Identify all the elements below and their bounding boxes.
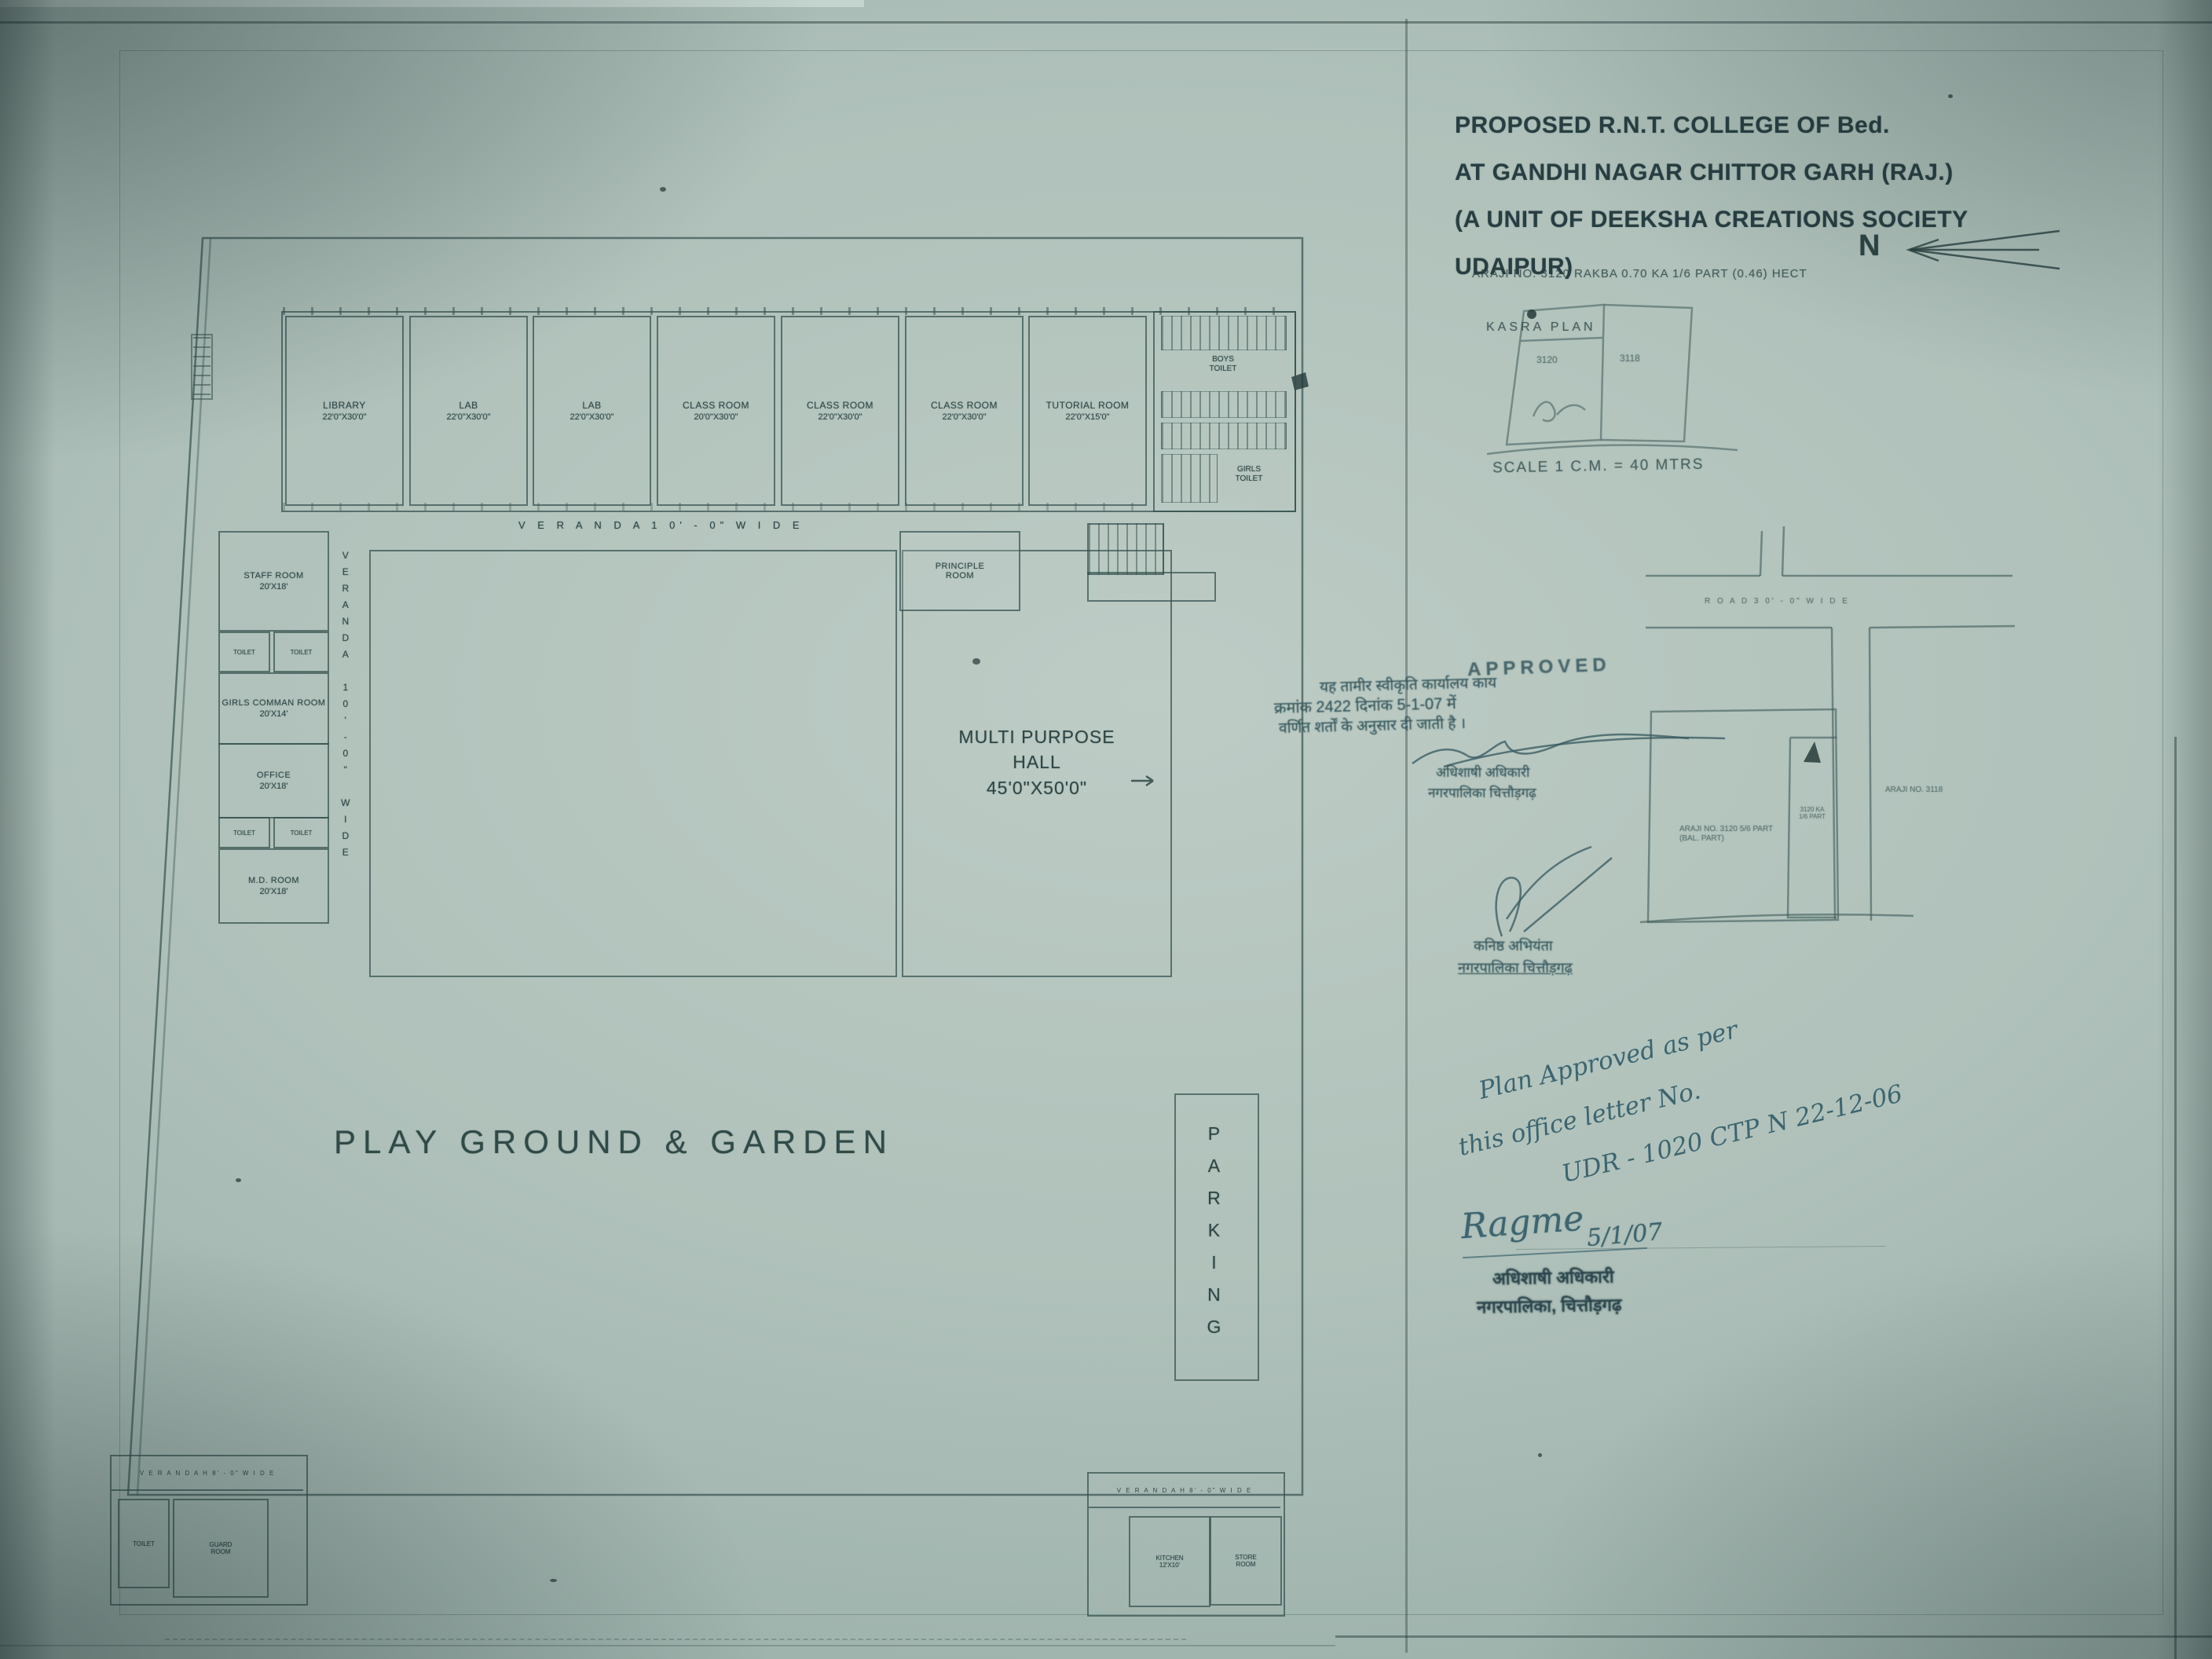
room-office: OFFICE 20'X18'	[218, 743, 329, 819]
room-label: CLASS ROOM	[807, 400, 873, 411]
site-inner-plot-label: 3120 KA 1/6 PART	[1789, 806, 1835, 820]
gate-right-room2: STORE ROOM	[1210, 1516, 1282, 1606]
site-plot-label: ARAJI NO. 3120 5/6 PART (BAL. PART)	[1679, 825, 1773, 843]
boys-toilet-cubicles	[1161, 316, 1287, 350]
room-label: CLASS ROOM	[683, 400, 749, 411]
courtyard-outline	[369, 550, 897, 977]
approved-officer1: अधिशाषी अधिकारी	[1436, 765, 1529, 781]
dust-speck	[1948, 94, 1953, 98]
room-class-1: CLASS ROOM 20'0"X30'0"	[657, 316, 775, 506]
room-class-3: CLASS ROOM 22'0"X30'0"	[905, 316, 1024, 506]
eo-stamp-line1: अधिशाषी अधिकारी	[1492, 1267, 1614, 1289]
gate-left-room2: GUARD ROOM	[173, 1499, 269, 1598]
blueprint-photo: LIBRARY 22'0"X30'0" LAB 22'0"X30'0" LAB …	[0, 0, 2212, 1659]
stair-block	[1087, 523, 1164, 575]
eo-stamp-line2: नगरपालिका, चित्तौड़गढ़	[1477, 1295, 1622, 1317]
kasra-parcel-right: 3118	[1620, 353, 1640, 364]
room-dims: 20'0"X30'0"	[694, 412, 738, 422]
room-girls-common: GIRLS COMMAN ROOM 20'X14'	[218, 672, 329, 745]
title-block: PROPOSED R.N.T. COLLEGE OF Bed. AT GANDH…	[1455, 102, 2052, 291]
toilet-cell-2: TOILET	[273, 632, 329, 672]
room-md: M.D. ROOM 20'X18'	[218, 848, 329, 924]
room-dims: 22'0"X30'0"	[942, 412, 986, 422]
room-label: LIBRARY	[323, 400, 366, 411]
north-label: N	[1859, 229, 1880, 264]
approved-officer2: नगरपालिका चित्तौड़गढ़	[1428, 786, 1536, 801]
top-window-band	[283, 307, 1291, 315]
room-library: LIBRARY 22'0"X30'0"	[285, 316, 404, 506]
boys-toilet-label: BOYS TOILET	[1155, 355, 1291, 373]
dust-speck	[1538, 1453, 1542, 1457]
veranda-top-label: V E R A N D A 1 0' - 0" W I D E	[518, 520, 804, 532]
principle-room: PRINCIPLE ROOM	[899, 531, 1020, 611]
toilet-cubicles-mid2	[1161, 423, 1287, 449]
dust-speck	[972, 658, 980, 665]
room-dims: 22'0"X15'0"	[1065, 412, 1109, 422]
dust-speck	[660, 187, 666, 192]
room-tutorial: TUTORIAL ROOM 22'0"X15'0"	[1028, 316, 1147, 506]
girls-toilet-label: GIRLS TOILET	[1210, 465, 1288, 483]
room-lab-2: LAB 22'0"X30'0"	[533, 316, 651, 506]
title-line1: PROPOSED R.N.T. COLLEGE OF Bed.	[1455, 102, 2052, 149]
toilet-cell-1: TOILET	[218, 632, 270, 672]
room-lab-1: LAB 22'0"X30'0"	[409, 316, 528, 506]
room-dims: 22'0"X30'0"	[446, 412, 490, 422]
room-label: TUTORIAL ROOM	[1046, 400, 1130, 411]
gate-right-room1: KITCHEN 12'X10'	[1129, 1516, 1210, 1607]
parking-label: PARKING	[1203, 1122, 1224, 1350]
room-dims: 22'0"X30'0"	[569, 412, 613, 422]
site-right-label: ARAJI NO. 3118	[1885, 786, 1943, 795]
room-dims: 22'0"X30'0"	[818, 412, 862, 422]
kasra-plan-label: KASRA PLAN	[1486, 320, 1596, 335]
playground-label: PLAY GROUND & GARDEN	[334, 1123, 894, 1161]
dust-speck	[236, 1178, 241, 1182]
kasra-parcel-left: 3120	[1536, 355, 1558, 366]
toilet-cubicles-mid1	[1161, 391, 1287, 418]
title-line2: AT GANDHI NAGAR CHITTOR GARH (RAJ.)	[1455, 149, 2052, 196]
gate-right-verandah: V E R A N D A H 8' - 0" W I D E	[1089, 1474, 1280, 1508]
room-label: LAB	[582, 400, 601, 411]
veranda-left-label: VERANDA 10'-0" WIDE	[339, 550, 350, 919]
hall-label: MULTI PURPOSE HALL 45'0"X50'0"	[923, 727, 1151, 798]
je-stamp-line2: नगरपालिका चित्तौड़गढ़	[1458, 960, 1573, 976]
toilet-cell-3: TOILET	[218, 817, 270, 848]
gate-left-room1: TOILET	[118, 1499, 170, 1588]
room-label: CLASS ROOM	[931, 400, 998, 411]
araji-line: ARAJI NO. 3120 RAKBA 0.70 KA 1/6 PART (0…	[1472, 267, 1807, 280]
site-road-label: R O A D 3 0' - 0" W I D E	[1705, 597, 1850, 606]
gate-left-verandah: V E R A N D A H 8' - 0" W I D E	[112, 1456, 303, 1491]
je-stamp-line1: कनिष्ठ अभियंता	[1474, 938, 1553, 954]
room-label: LAB	[459, 400, 478, 411]
stair-landing	[1087, 572, 1216, 602]
room-class-2: CLASS ROOM 22'0"X30'0"	[781, 316, 899, 506]
room-dims: 22'0"X30'0"	[322, 412, 366, 422]
toilet-cell-4: TOILET	[273, 817, 329, 848]
room-staff: STAFF ROOM 20'X18'	[218, 531, 329, 632]
bottom-dashed-line	[165, 1639, 1186, 1640]
dust-speck	[550, 1579, 557, 1582]
